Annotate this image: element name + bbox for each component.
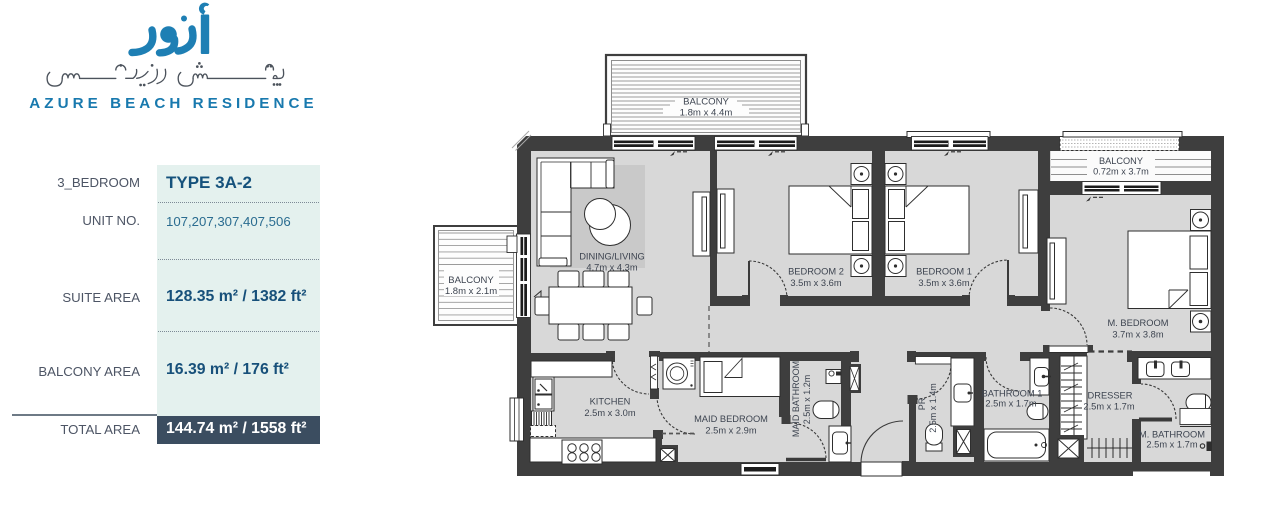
svg-text:2.5m x 1.7m: 2.5m x 1.7m [1146, 440, 1197, 450]
svg-text:KITCHEN: KITCHEN [590, 397, 631, 407]
svg-text:BALCONY: BALCONY [448, 275, 494, 286]
svg-text:BALCONY: BALCONY [683, 97, 729, 108]
svg-text:3.5m x 3.6m: 3.5m x 3.6m [918, 278, 969, 288]
svg-text:0.72m x 3.7m: 0.72m x 3.7m [1093, 167, 1149, 177]
svg-text:MAID BEDROOM: MAID BEDROOM [694, 414, 768, 424]
svg-text:M. BATHROOM: M. BATHROOM [1139, 430, 1205, 440]
svg-text:3.5m x 3.6m: 3.5m x 3.6m [790, 278, 841, 288]
svg-text:2.5m x 1.4m: 2.5m x 1.4m [928, 383, 938, 433]
svg-text:2.5m x 1.7m: 2.5m x 1.7m [1083, 402, 1134, 412]
svg-text:MAID BATHROOM: MAID BATHROOM [791, 361, 801, 437]
svg-text:BEDROOM 1: BEDROOM 1 [916, 267, 972, 277]
svg-text:BATHROOM 1: BATHROOM 1 [982, 389, 1043, 399]
svg-text:M. BEDROOM: M. BEDROOM [1108, 318, 1169, 328]
svg-text:BALCONY: BALCONY [1099, 156, 1143, 166]
svg-text:2.5m x 1.2m: 2.5m x 1.2m [802, 375, 812, 425]
svg-text:3.7m x 3.8m: 3.7m x 3.8m [1112, 330, 1163, 340]
svg-text:2.5m x 3.0m: 2.5m x 3.0m [584, 408, 635, 418]
svg-text:2.5m x 1.7m: 2.5m x 1.7m [985, 399, 1036, 409]
svg-text:DRESSER: DRESSER [1088, 391, 1133, 401]
svg-text:BEDROOM 2: BEDROOM 2 [788, 267, 844, 277]
svg-text:4.7m x 4.3m: 4.7m x 4.3m [586, 263, 637, 273]
svg-text:DINING/LIVING: DINING/LIVING [579, 252, 645, 262]
svg-text:PR: PR [917, 397, 927, 410]
svg-text:1.8m x 2.1m: 1.8m x 2.1m [445, 286, 497, 297]
svg-text:1.8m x 4.4m: 1.8m x 4.4m [680, 108, 733, 119]
svg-text:2.5m x 2.9m: 2.5m x 2.9m [705, 426, 756, 436]
